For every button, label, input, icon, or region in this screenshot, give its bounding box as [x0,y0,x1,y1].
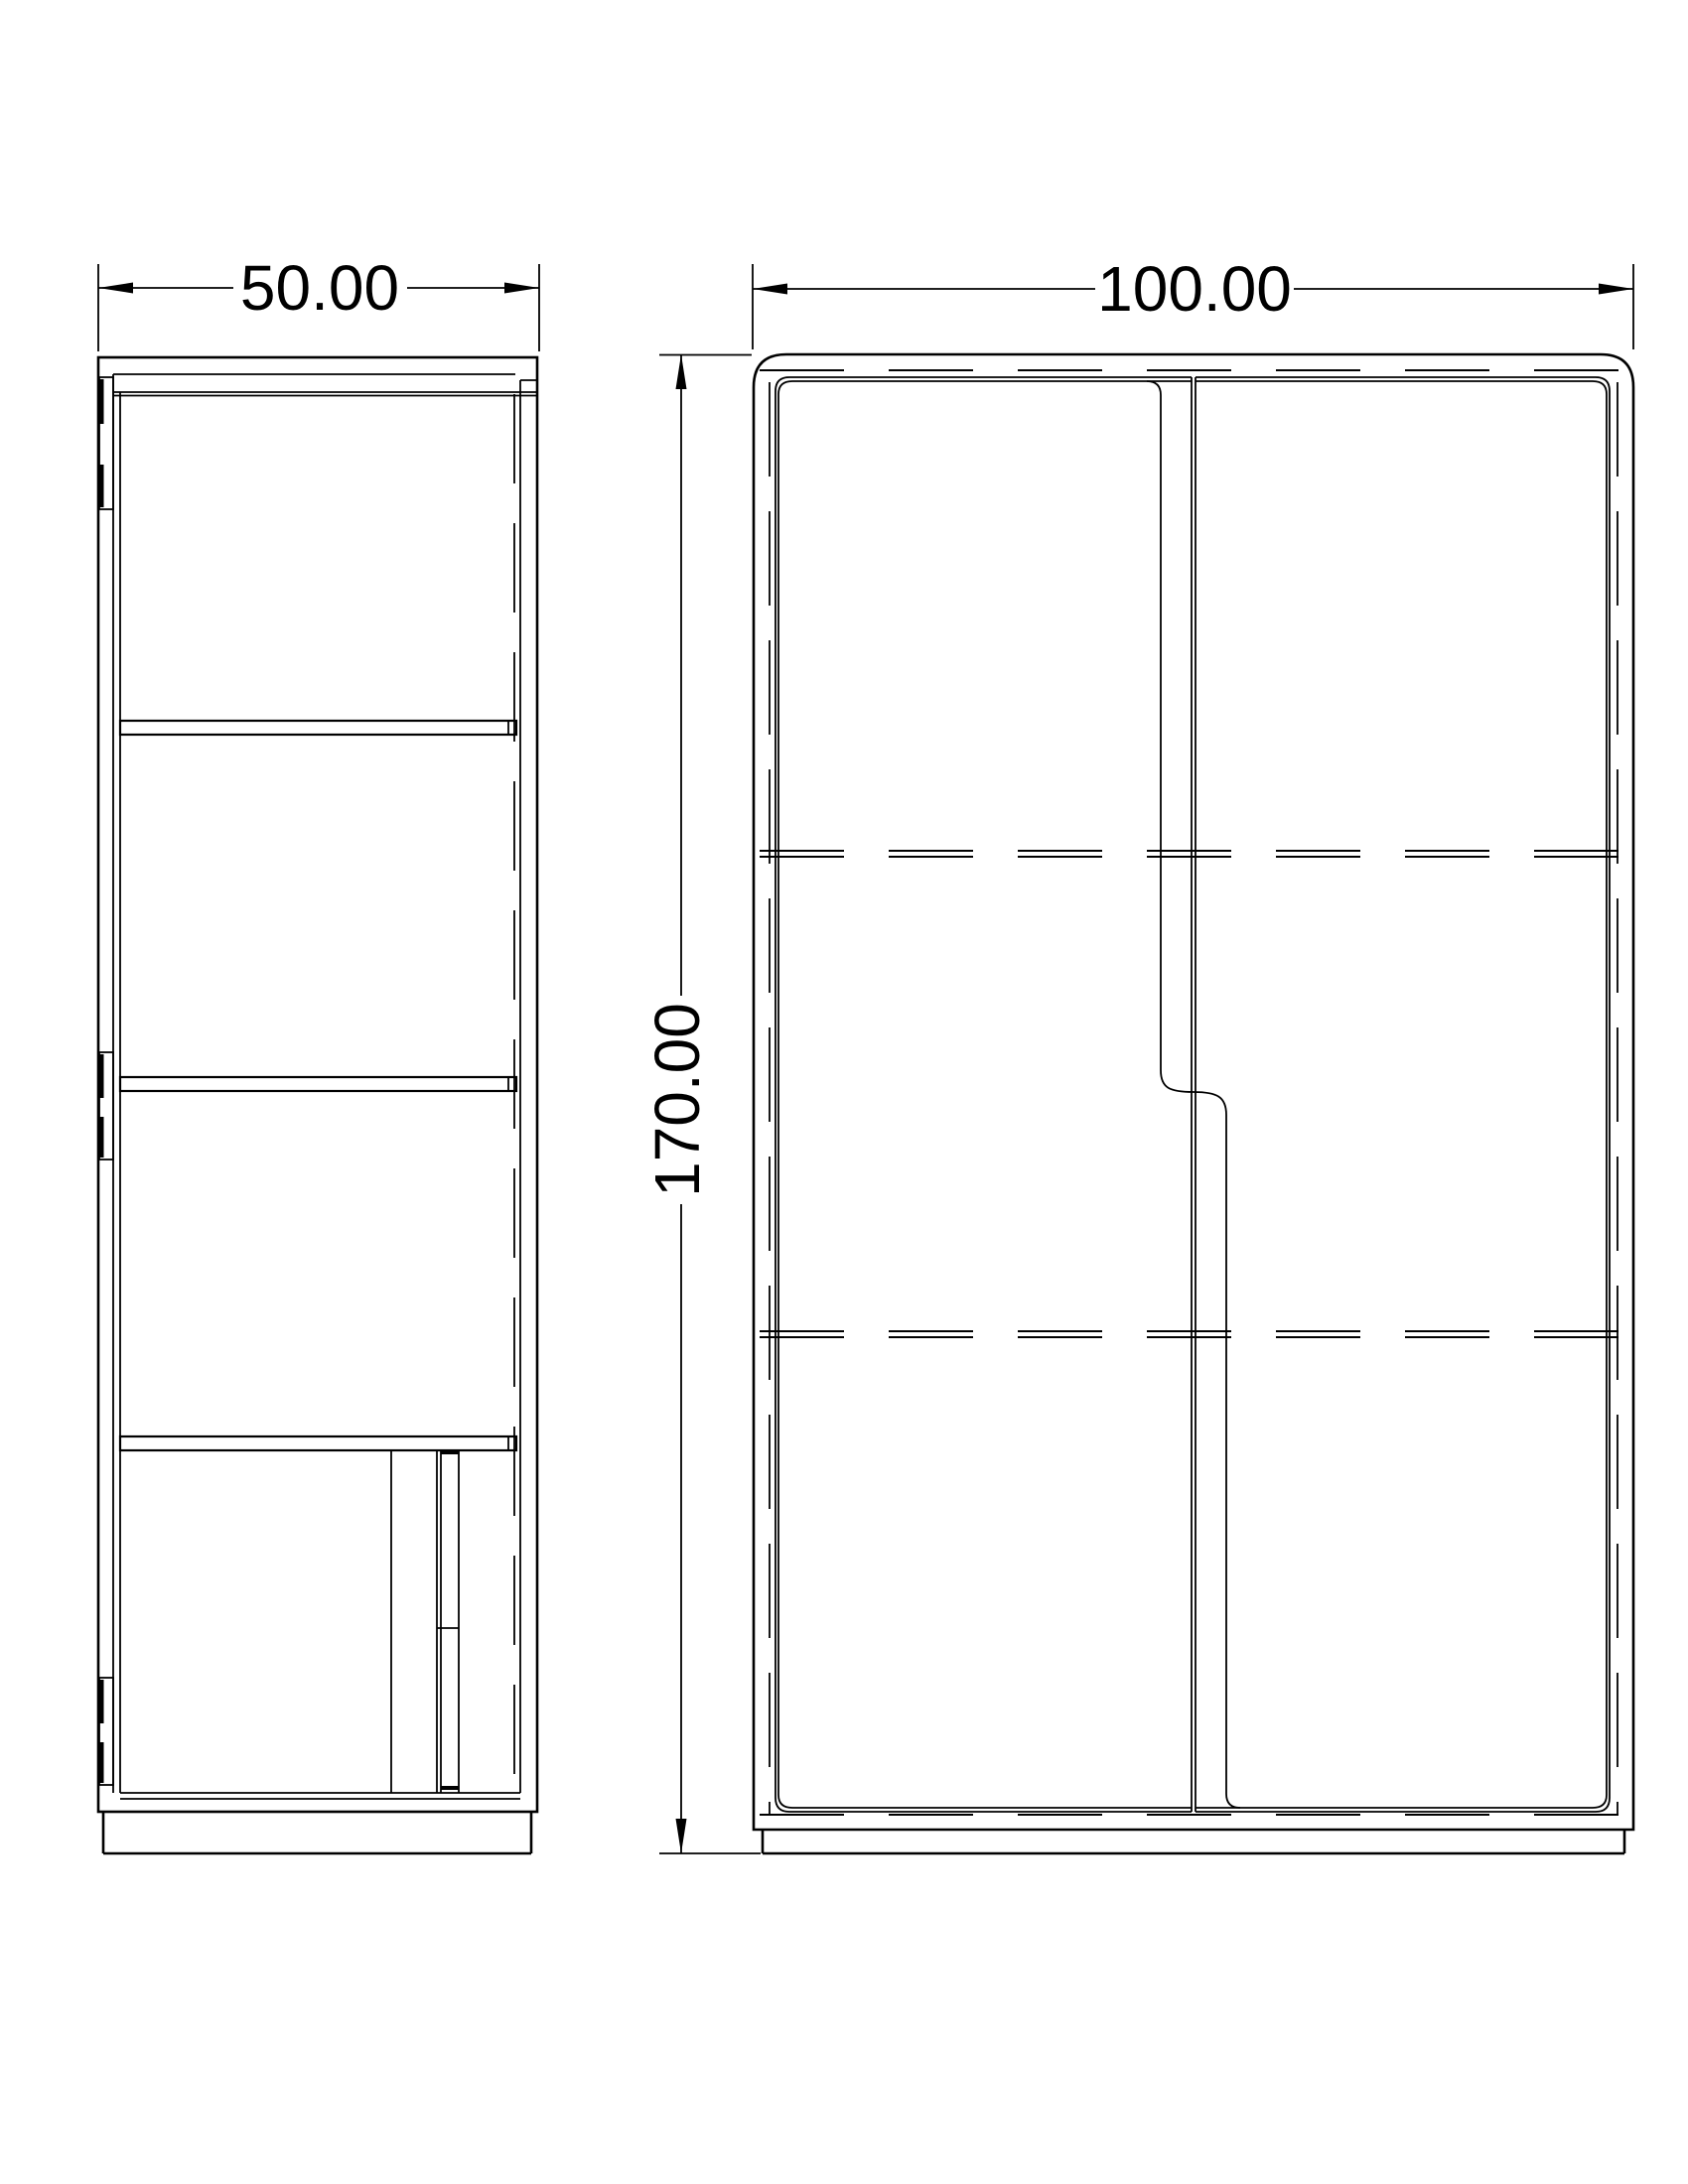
side-hinge-2 [99,1052,113,1160]
arrowhead-left [753,284,787,295]
arrowhead-left [98,283,133,294]
dimension-side-width: 50.00 [98,252,539,351]
door-handle-groove [1147,381,1240,1808]
technical-drawing: 50.00 100.00 170.00 [0,0,1688,2184]
dimension-front-height: 170.00 [641,354,761,1853]
dimension-label-side-width: 50.00 [240,252,399,324]
door-gap [1192,377,1196,1812]
arrowhead-right [504,283,539,294]
right-door-outer-edge [1196,377,1610,1812]
dimension-label-front-height: 170.00 [641,1003,713,1197]
side-view [98,357,537,1853]
shelf-1-body [120,721,516,735]
side-plinth [103,1812,531,1853]
front-view [754,354,1633,1853]
side-view-outline [98,357,537,1812]
right-door [1196,377,1610,1812]
side-hinge-3 [99,1678,113,1785]
shelf-2-body [120,1077,516,1091]
left-door-inner-edge [778,381,1192,1808]
side-shelf-1 [120,721,516,735]
shelf-3-body [120,1436,516,1450]
side-drawer-divider [391,1450,459,1793]
side-hinge-1 [99,377,113,509]
drawing-canvas: 50.00 100.00 170.00 [0,0,1688,2184]
side-shelf-2 [120,1077,516,1091]
side-shelf-3 [120,1436,516,1450]
right-door-inner-edge [1196,381,1607,1808]
front-plinth [763,1830,1624,1853]
left-door-outer-edge [775,377,1192,1812]
left-door [775,377,1192,1812]
arrowhead-bottom [676,1819,687,1853]
arrowhead-top [676,354,687,389]
dimension-label-front-width: 100.00 [1097,253,1292,325]
dimension-front-width: 100.00 [753,253,1633,349]
arrowhead-right [1599,284,1633,295]
